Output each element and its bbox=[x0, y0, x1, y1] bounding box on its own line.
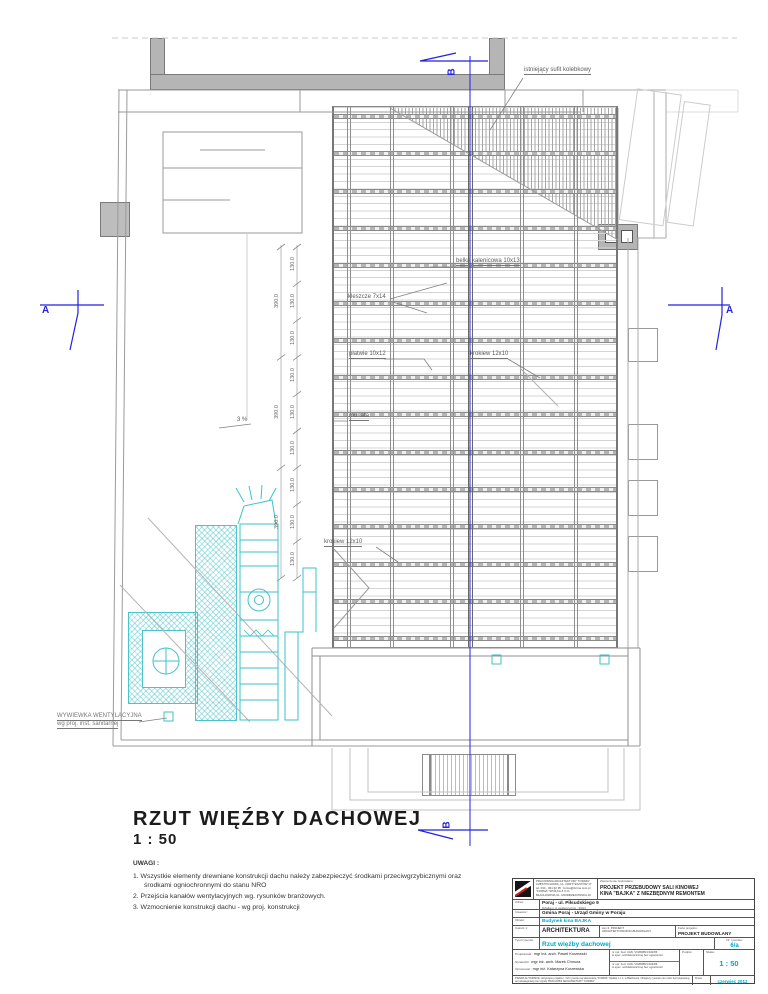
note-item: 1. Wszystkie elementy drewniane konstruk… bbox=[133, 873, 463, 891]
drawing-sheet: B B A A istniejący sufit kolebkowy belka… bbox=[0, 0, 768, 994]
note-item: 3. Wzmocnienie konstrukcji dachu - wg pr… bbox=[133, 904, 463, 913]
licenses-cell: nr upr. bud. UAN. VIII/8388/1/102/86 w s… bbox=[609, 950, 679, 975]
dimension-label: 130.0 bbox=[290, 435, 296, 461]
title-block: PRACOWNIA ARCHITEKTURY "FORMA" CZĘSTOCHO… bbox=[512, 878, 755, 984]
label-collar-ties: kleszcze 7x14 bbox=[348, 294, 386, 302]
project-name-2: KINA "BAJKA" Z NIEZBĘDNYM REMONTEM bbox=[600, 891, 752, 897]
label-rafter-bottom: krokiew 12x10 bbox=[324, 539, 362, 547]
lobby-outline bbox=[312, 648, 640, 746]
phase-cell: Faza projektu: PROJEKT BUDOWLANY bbox=[675, 926, 754, 937]
label-slope: 3 % bbox=[237, 417, 247, 424]
drawing-scale: 1 : 50 bbox=[133, 831, 177, 848]
label-ridge-beam: belka kalenicowa 10x13 bbox=[456, 258, 520, 266]
dimension-label: 130.0 bbox=[290, 288, 296, 314]
dimension-label: 130.0 bbox=[290, 325, 296, 351]
section-marker-b-top: B bbox=[448, 68, 458, 75]
dimension-label: 130.0 bbox=[290, 472, 296, 498]
label-rafter-top: krokiew 12x10 bbox=[470, 351, 508, 359]
dimension-label: 390.0 bbox=[274, 399, 280, 425]
tilted-roof-panels bbox=[619, 89, 711, 230]
object-cell: Budynek kina BAJKA bbox=[539, 918, 754, 925]
discipline-cell: ARCHITEKTURA bbox=[539, 926, 599, 937]
label-vent-stack-2: wg proj. inst. sanitarnej bbox=[57, 721, 118, 729]
hip-rafter-lines bbox=[334, 108, 618, 628]
label-vent-stack-1: WYWIEWKA WENTYLACYJNA bbox=[57, 713, 142, 721]
canopy-offset-lines bbox=[332, 748, 640, 810]
section-marker-a-left: A bbox=[42, 306, 49, 316]
label-existing-ceiling: istniejący sufit kolebkowy bbox=[524, 67, 591, 75]
dimension-label: 130.0 bbox=[290, 362, 296, 388]
vent-duct-lines bbox=[153, 485, 609, 721]
dimension-label: 390.0 bbox=[274, 288, 280, 314]
notes-heading: UWAGI : bbox=[133, 860, 463, 867]
dimension-label: 130.0 bbox=[290, 546, 296, 572]
leader-lines bbox=[139, 78, 540, 722]
forma-logo bbox=[515, 881, 531, 897]
drawing-title-cell: Rzut więźby dachowej bbox=[539, 938, 714, 949]
section-marker-b-bottom: B bbox=[443, 821, 453, 828]
drawing-number-cell: Nr. rysunku: 6/a bbox=[714, 938, 754, 949]
volume-cell: tom II. PROJEKT ARCHITEKTONICZNO-BUDOWLA… bbox=[599, 926, 675, 937]
dimension-label: 130.0 bbox=[290, 509, 296, 535]
drawing-title: RZUT WIĘŹBY DACHOWEJ bbox=[133, 808, 422, 831]
section-marker-a-right: A bbox=[726, 306, 733, 316]
building-outline-lines bbox=[113, 90, 666, 810]
label-purlins: płatwie 10x12 bbox=[349, 351, 386, 359]
linework-overlay bbox=[0, 0, 768, 994]
lower-roof-slope-lines bbox=[120, 518, 332, 722]
scale-cell: Skala: 1 : 50 bbox=[703, 950, 754, 975]
address-cell: Poraj - ul. Piłsudskiego 9 Działka o nr … bbox=[539, 900, 754, 909]
dimension-label: 390.0 bbox=[274, 509, 280, 535]
investor-cell: Gmina Poraj - Urząd Gminy w Poraju bbox=[539, 910, 754, 917]
copyright-cell: PRAWA AUTORSKIE: dotyczące projektu i / … bbox=[513, 976, 692, 985]
dimension-label: 130.0 bbox=[290, 399, 296, 425]
venture-cell: Zamierzenie budowlane: PROJEKT PRZEBUDOW… bbox=[597, 879, 754, 899]
notes-block: UWAGI : 1. Wszystkie elementy drewniane … bbox=[133, 860, 463, 916]
date-cell: czerwiec 2012 bbox=[710, 976, 754, 985]
note-item: 2. Przejścia kanałów wentylacyjnych wg. … bbox=[133, 893, 463, 902]
office-info: PRACOWNIA ARCHITEKTURY "FORMA" CZĘSTOCHO… bbox=[533, 879, 597, 899]
dimension-label: 130.0 bbox=[290, 251, 296, 277]
authors-cell: Projektował : mgr inż. arch. Paweł Korze… bbox=[513, 950, 609, 975]
label-wall-plate: murłata bbox=[349, 413, 369, 421]
